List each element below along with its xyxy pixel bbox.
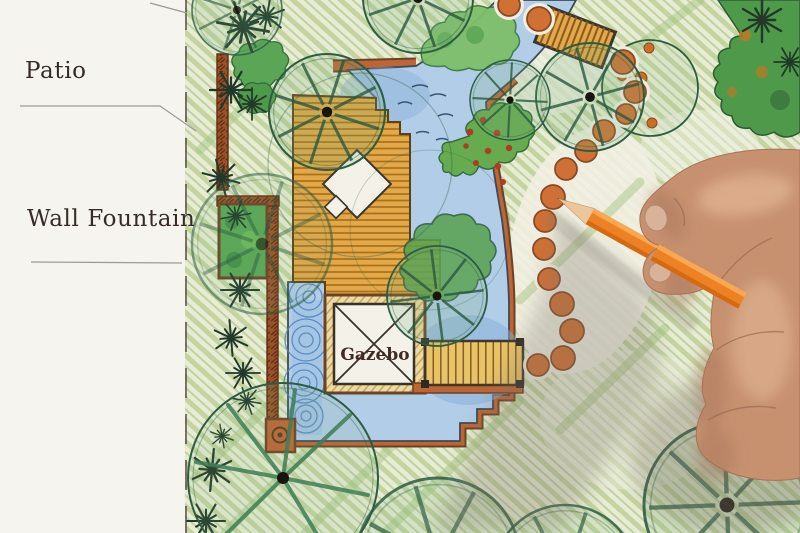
photo-of-landscape-plan: Gazebo (0, 0, 800, 533)
gazebo-label: Gazebo (340, 345, 409, 365)
patio-label: Patio (25, 58, 87, 84)
plan-drawing: Gazebo (0, 0, 800, 533)
wall-fountain-label: Wall Fountain (27, 206, 195, 232)
